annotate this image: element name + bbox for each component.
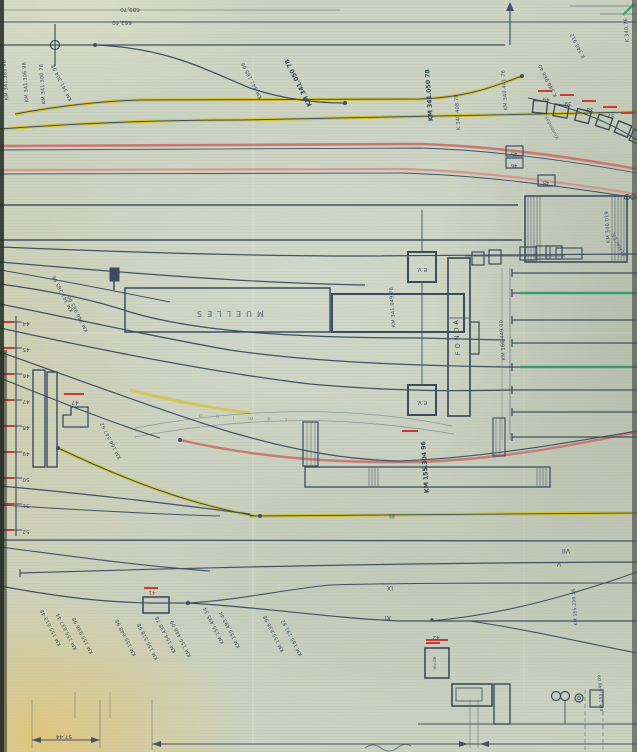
km-label: KM 340.441 76 <box>501 70 510 111</box>
km-label: KM 340.019 <box>604 211 612 243</box>
track-line <box>0 247 637 256</box>
dimension-arrows <box>32 737 489 747</box>
house-number: 38 <box>586 106 594 112</box>
bottom-building-annex <box>494 684 510 724</box>
boundary-lines <box>0 6 637 22</box>
red-track <box>0 169 637 194</box>
hatching <box>496 419 500 455</box>
track-line <box>20 562 637 573</box>
track-line <box>15 76 522 114</box>
red-tracks <box>0 144 637 462</box>
arrowhead <box>91 737 100 743</box>
switch-dot <box>520 74 524 78</box>
elevation-label: 689,70 <box>120 6 140 12</box>
track-line <box>0 486 250 514</box>
vivienda-box-label: Viv.da <box>432 656 438 669</box>
hatched-pier <box>493 418 505 456</box>
pit-hut <box>536 246 550 259</box>
switch-dot <box>56 446 60 450</box>
track-numeral: XI <box>385 614 391 622</box>
loading-gauge-symbol <box>110 268 119 281</box>
fonda-label: FONDA <box>452 317 463 356</box>
switch-dot <box>430 618 434 622</box>
track-line <box>0 270 170 302</box>
arrowhead <box>480 741 489 747</box>
plan-drawing: 689,70 662,40 KM 341.385 96 KM 341.306 9… <box>0 0 637 752</box>
elevation-label: 662,40 <box>112 19 132 25</box>
switch-dot <box>93 43 97 47</box>
muelles-label: MUELLES <box>192 309 264 318</box>
edge-number: 47 <box>22 398 30 404</box>
stub-track <box>512 339 637 347</box>
km-label: KM 341.185 06 <box>240 61 264 100</box>
track-line <box>0 586 188 603</box>
annotation: ALMACEN <box>611 232 628 258</box>
km-label: KM 166.547 62 <box>99 421 123 460</box>
track-line <box>188 603 637 621</box>
long-shed <box>47 372 57 467</box>
stub-track <box>512 408 637 416</box>
labels-layer: 689,70 662,40 KM 341.385 96 KM 341.306 9… <box>2 6 631 739</box>
km-label: KM 341.049 78 <box>389 287 398 328</box>
switch-dot <box>258 514 262 518</box>
yellow-track <box>58 448 255 516</box>
km-label: K 340.966 40 <box>537 63 559 98</box>
ev-label: E.V. <box>417 399 427 405</box>
km-label: KM 155.648 98 <box>114 618 138 657</box>
ev-label: E.V. <box>417 266 427 272</box>
fonda-annex <box>470 322 479 354</box>
edge-number: 48 <box>22 424 30 430</box>
handwriting-scribble <box>365 744 411 751</box>
scanned-railway-yard-plan: 689,70 662,40 KM 341.385 96 KM 341.306 9… <box>0 0 637 752</box>
arrowhead <box>152 741 161 747</box>
bottom-building <box>452 684 492 706</box>
hatching <box>537 468 546 486</box>
track-line <box>0 540 637 541</box>
track-numeral: III <box>389 512 395 520</box>
km-label: KM 341.306 98 <box>22 62 31 103</box>
road-edge <box>135 412 452 428</box>
track-line <box>188 583 637 603</box>
scan-edge-left <box>0 350 7 752</box>
track-numeral: IX <box>386 584 393 592</box>
track-line <box>0 547 210 571</box>
km-label: KM 341.304 98 <box>50 63 74 102</box>
annotation: Viviendas <box>543 114 560 140</box>
track-numeral: VII <box>562 547 570 555</box>
hatching <box>528 197 540 261</box>
tank-circle <box>552 692 561 701</box>
km-label: KM 166.449 00 <box>499 320 508 361</box>
stub-track <box>512 269 637 277</box>
km-label: KM 155.446 09 <box>597 675 606 712</box>
km-label: KM 155.518 68 <box>136 622 160 661</box>
hut-41 <box>143 597 169 613</box>
km-label: K 340.912 <box>569 32 587 59</box>
tank-circle <box>575 694 583 702</box>
road-edge <box>135 421 454 437</box>
long-shed <box>33 370 45 467</box>
hatching <box>369 468 378 486</box>
edge-number: 51 <box>22 502 30 508</box>
km-label: KM 155.236 16 <box>571 589 580 626</box>
track-numeral: V <box>556 560 561 568</box>
bottom-building-inner <box>456 688 482 701</box>
yellow-track <box>130 390 250 413</box>
hut-number: 42 <box>432 634 439 640</box>
track-line <box>0 328 512 391</box>
house-number: 37 <box>607 112 615 118</box>
track-line <box>58 448 255 516</box>
tank-circle <box>561 692 570 701</box>
stub-track <box>512 386 637 394</box>
extension-lines <box>75 692 110 718</box>
edge-number: 45 <box>22 346 30 352</box>
edge-number: 44 <box>22 320 30 326</box>
dimension-lines <box>32 690 637 752</box>
edge-number: 49 <box>22 450 30 456</box>
switch-dot <box>343 101 347 105</box>
track-line <box>430 572 637 621</box>
muelle-platform-2 <box>332 294 464 332</box>
km-label: KM 341.050 78 <box>424 69 435 121</box>
hut-number: 46 <box>511 162 517 168</box>
house-number: 40 <box>542 96 550 102</box>
pit-hut <box>556 248 582 259</box>
yellow-track <box>15 76 522 114</box>
km-label: KM 341.300 78 <box>39 64 48 105</box>
switch-dot <box>186 601 190 605</box>
red-track <box>0 144 637 169</box>
scan-edge-right <box>632 0 637 752</box>
arrowhead <box>459 741 468 747</box>
stub-tracks <box>512 269 637 441</box>
stub-track <box>512 316 637 324</box>
switch-dot <box>178 438 182 442</box>
hut-number: 45 <box>511 150 517 156</box>
vivienda-row <box>528 98 637 145</box>
edge-number: 50 <box>22 476 30 482</box>
hut-number: 48 <box>543 179 549 185</box>
hut-number: 41 <box>148 589 156 595</box>
dimension-value: 57,44 <box>56 733 72 739</box>
tank-circle-center <box>578 697 581 700</box>
edge-number: 52 <box>22 528 29 534</box>
survey-arrowhead <box>506 2 514 11</box>
small-building <box>489 250 501 264</box>
yellow-track <box>0 112 637 129</box>
house-number: 39 <box>564 100 572 106</box>
track-line <box>470 621 637 653</box>
edge-number: 46 <box>22 372 30 378</box>
arrowhead <box>32 737 41 743</box>
small-building <box>472 252 484 265</box>
hut-number: 47 <box>71 399 79 405</box>
km-label: K 340.408 78 <box>454 94 462 130</box>
stepped-building-47 <box>63 407 88 427</box>
